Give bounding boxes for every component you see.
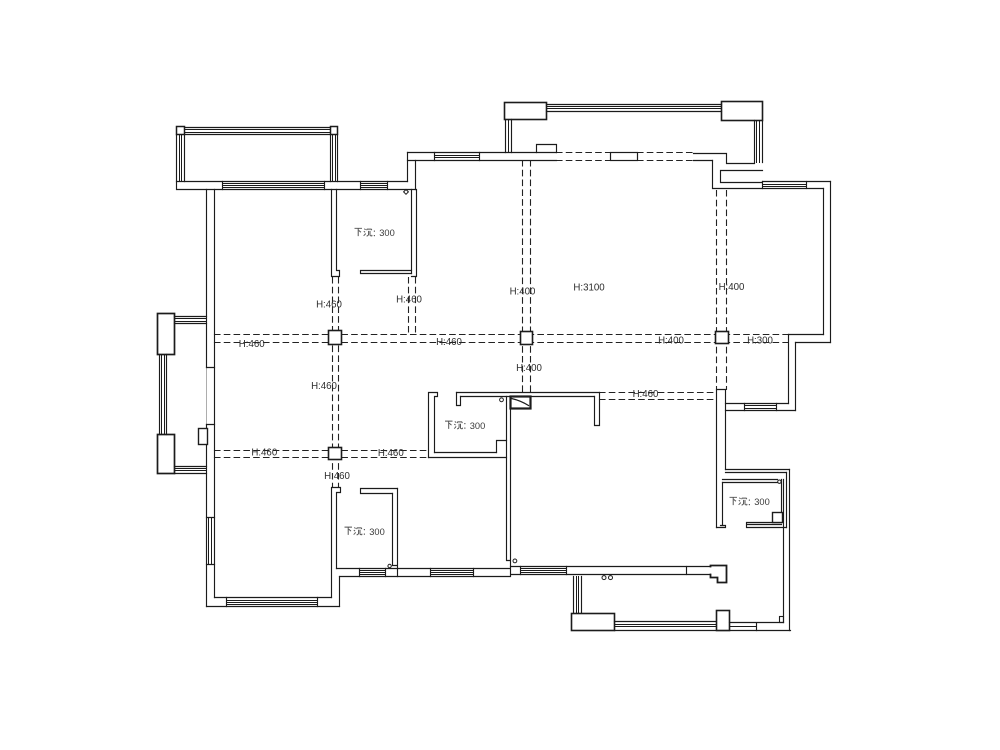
- svg-text:H:460: H:460: [324, 471, 350, 482]
- svg-text:H:460: H:460: [311, 381, 337, 392]
- svg-text:H:460: H:460: [378, 448, 404, 459]
- svg-text:H:460: H:460: [316, 299, 342, 310]
- svg-text:300: 300: [369, 527, 385, 537]
- svg-text:H:460: H:460: [436, 337, 462, 348]
- svg-text:300: 300: [379, 228, 395, 238]
- svg-text:H:460: H:460: [251, 447, 277, 458]
- svg-text:H:460: H:460: [633, 389, 659, 400]
- svg-text:H:3100: H:3100: [573, 283, 605, 294]
- svg-text:H:400: H:400: [658, 336, 684, 347]
- svg-text:H:400: H:400: [516, 363, 542, 374]
- svg-text:H:460: H:460: [396, 295, 422, 306]
- svg-text:300: 300: [754, 497, 770, 507]
- svg-text:300: 300: [470, 421, 486, 431]
- svg-text:H:460: H:460: [239, 339, 265, 350]
- svg-text:H:400: H:400: [719, 282, 745, 293]
- svg-text:H:400: H:400: [510, 287, 536, 298]
- svg-text:H:300: H:300: [747, 336, 773, 347]
